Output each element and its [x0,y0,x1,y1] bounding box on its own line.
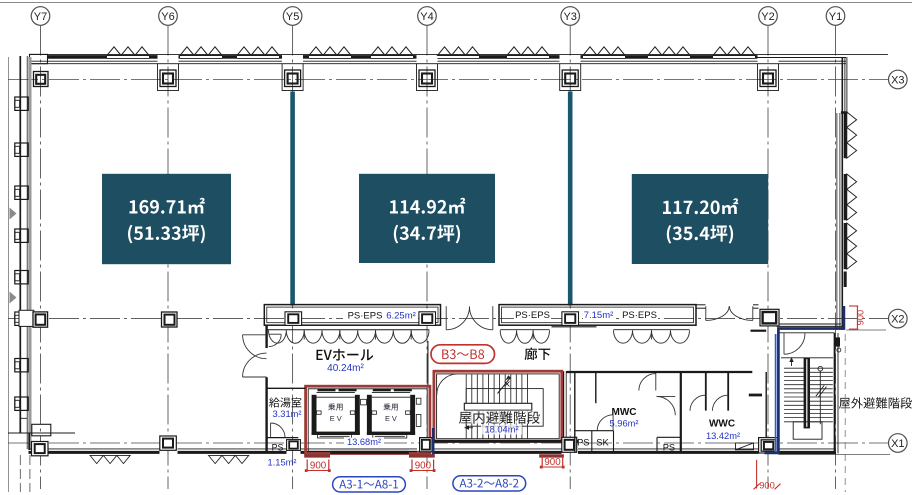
svg-text:PS·EPS: PS·EPS [622,310,657,321]
svg-text:X2: X2 [891,314,904,326]
svg-text:900: 900 [759,480,775,490]
svg-text:1.15m²: 1.15m² [268,458,297,468]
svg-text:Y1: Y1 [829,11,842,23]
svg-text:900: 900 [544,457,561,468]
svg-text:PS: PS [272,442,284,452]
svg-text:PS: PS [663,442,675,452]
svg-text:E V: E V [385,414,397,423]
svg-text:Y7: Y7 [34,11,47,23]
svg-text:13.42m²: 13.42m² [706,431,740,441]
svg-text:900: 900 [415,460,432,471]
svg-text:Y5: Y5 [286,11,299,23]
svg-text:Y3: Y3 [563,11,576,23]
svg-text:Y6: Y6 [161,11,174,23]
svg-text:WWC: WWC [709,419,735,430]
svg-text:PS: PS [577,437,589,447]
svg-text:PS·EPS: PS·EPS [348,310,383,321]
svg-text:900: 900 [856,310,866,326]
svg-text:900: 900 [310,460,327,471]
svg-text:X1: X1 [891,438,904,450]
svg-text:6.25m²: 6.25m² [386,310,416,321]
svg-text:X3: X3 [891,74,904,86]
svg-text:18.04m²: 18.04m² [484,425,518,435]
svg-text:Y2: Y2 [761,11,774,23]
svg-text:3.31m²: 3.31m² [273,409,302,419]
svg-text:7.15m²: 7.15m² [584,310,614,321]
svg-text:40.24m²: 40.24m² [327,363,364,374]
svg-text:E V: E V [330,414,342,423]
svg-text:5.96m²: 5.96m² [610,419,639,429]
svg-text:SK: SK [596,437,609,447]
svg-text:13.68m²: 13.68m² [347,437,381,447]
svg-text:Y4: Y4 [420,11,433,23]
svg-text:MWC: MWC [612,407,637,418]
svg-text:PS·EPS: PS·EPS [515,310,550,321]
